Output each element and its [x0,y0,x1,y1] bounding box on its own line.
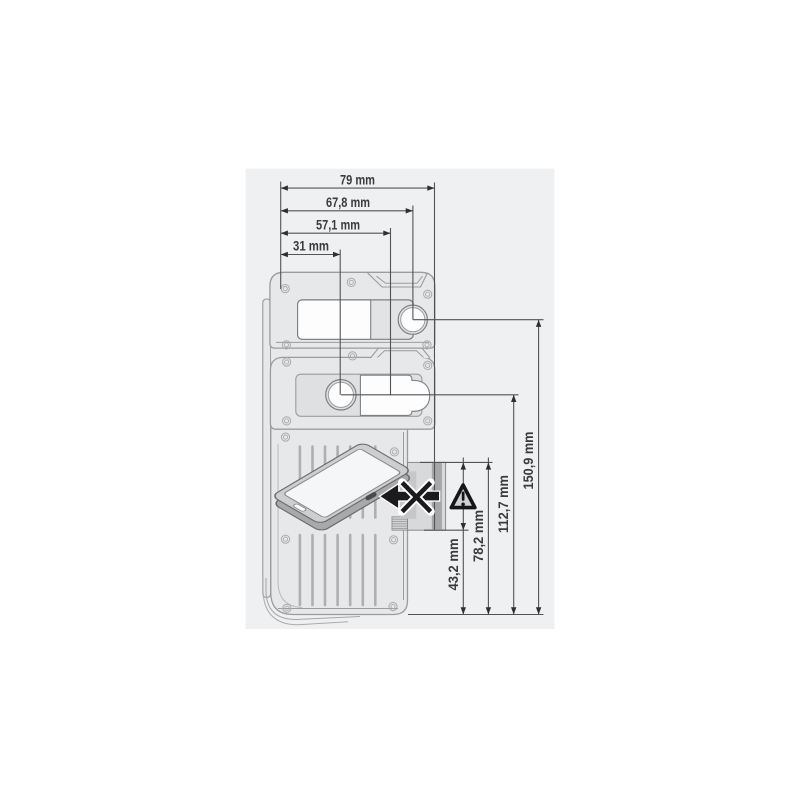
svg-text:43,2 mm: 43,2 mm [446,539,461,591]
svg-text:112,7 mm: 112,7 mm [496,475,511,533]
svg-text:67,8 mm: 67,8 mm [326,195,370,210]
svg-text:79 mm: 79 mm [340,172,375,187]
svg-text:31 mm: 31 mm [293,239,329,254]
svg-text:78,2 mm: 78,2 mm [471,510,486,562]
svg-text:57,1 mm: 57,1 mm [316,217,360,232]
svg-text:150,9 mm: 150,9 mm [521,432,536,490]
